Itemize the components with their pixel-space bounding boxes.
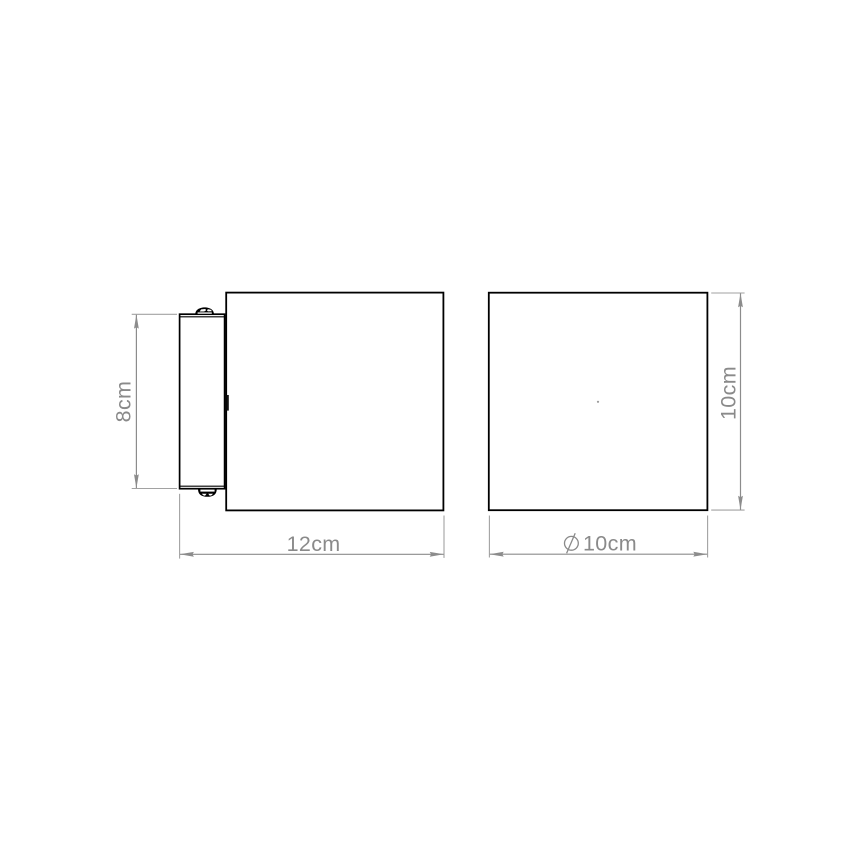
svg-text:10cm: 10cm — [717, 366, 741, 420]
svg-text:12cm: 12cm — [287, 532, 341, 556]
svg-text:8cm: 8cm — [112, 381, 136, 423]
svg-text:10cm: 10cm — [583, 532, 637, 556]
